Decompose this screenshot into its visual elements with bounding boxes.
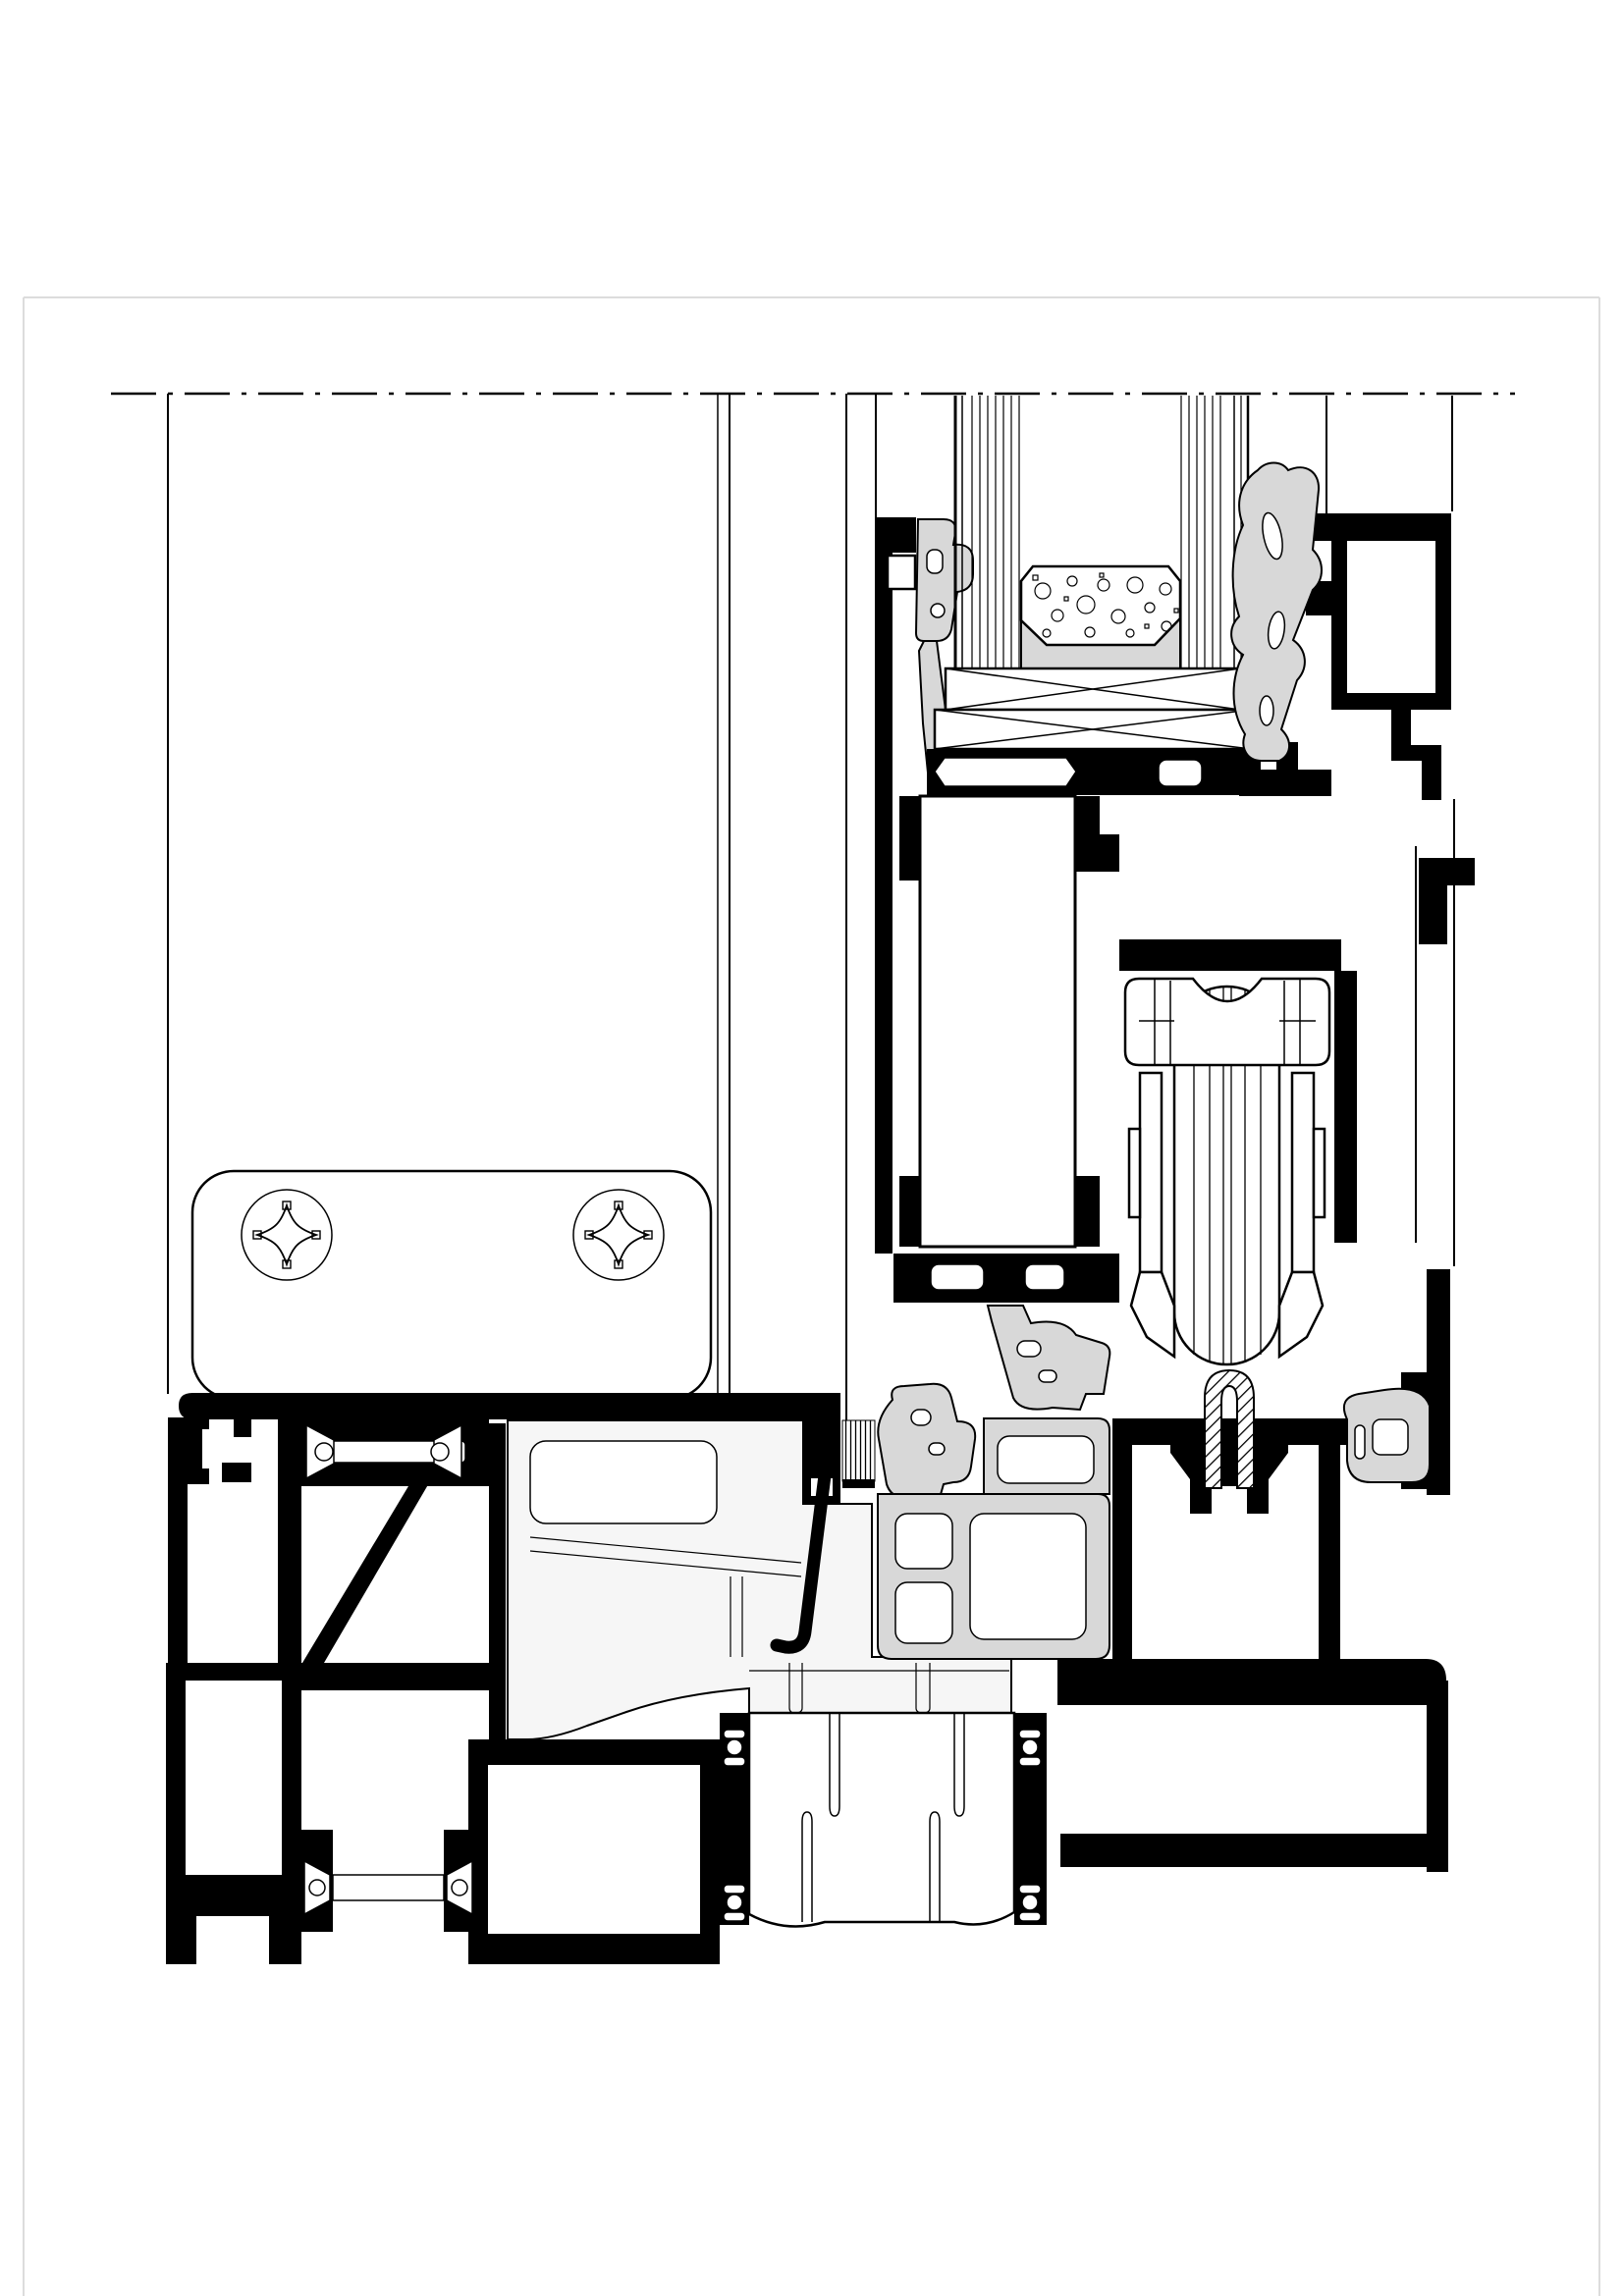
sill-center-box: Sill chamber profile <box>468 1739 720 1964</box>
guide-top-gasket: Sash guide gasket <box>878 1384 975 1498</box>
bottom-thermal-strip: Thermal break strip (bottom) <box>301 1830 475 1932</box>
roller-side-plate-left: Roller side plate (left) <box>1129 1073 1174 1357</box>
infill-panel: Infill panel unit <box>899 796 1119 1247</box>
phillips-screw-left: Phillips screw (left) <box>242 1190 332 1280</box>
fixing-bracket: Fixing bracket Phillips screw (left) Phi… <box>192 1171 711 1399</box>
roller-side-plate-right: Roller side plate (right) <box>1279 1073 1325 1357</box>
packer-block-upper: Glazing packer block (upper) <box>946 668 1240 710</box>
connector-band: Thermal-break connector band <box>927 749 1261 795</box>
sash-guide-gasket: Sash guide gasket <box>988 1306 1109 1410</box>
phillips-screw-right: Phillips screw (right) <box>573 1190 664 1280</box>
section-drawing: Drawing sheet border Section centerline … <box>0 0 1623 2296</box>
rail-support: Rail support rib <box>1170 1418 1288 1514</box>
head-frame: Outer frame head profile <box>1306 396 1452 710</box>
spacer-bar: Glazing spacer bar with desiccant <box>1021 566 1180 645</box>
brush-seal: Brush seal <box>842 1420 875 1488</box>
sill-thermal-break-top: Thermal break connectors (sill top) <box>301 1417 489 1486</box>
glass-unit: Insulated laminated glazing unit <box>955 396 1248 668</box>
sash-bottom-rail: Sash bottom rail <box>893 1254 1119 1303</box>
ribbed-sill-insert: Ribbed sill insert <box>749 1713 1014 1927</box>
packer-block-lower: Glazing packer block (lower) <box>935 710 1251 749</box>
threshold-profile: Threshold profile (outer) <box>1057 1269 1450 1872</box>
drawing-sheet: Aluminium sliding door - sill and sash c… <box>0 0 1623 2296</box>
sash-stile: Sliding sash stile profile <box>875 517 916 1254</box>
threshold-gasket: Threshold gasket (right) <box>1344 1389 1430 1482</box>
